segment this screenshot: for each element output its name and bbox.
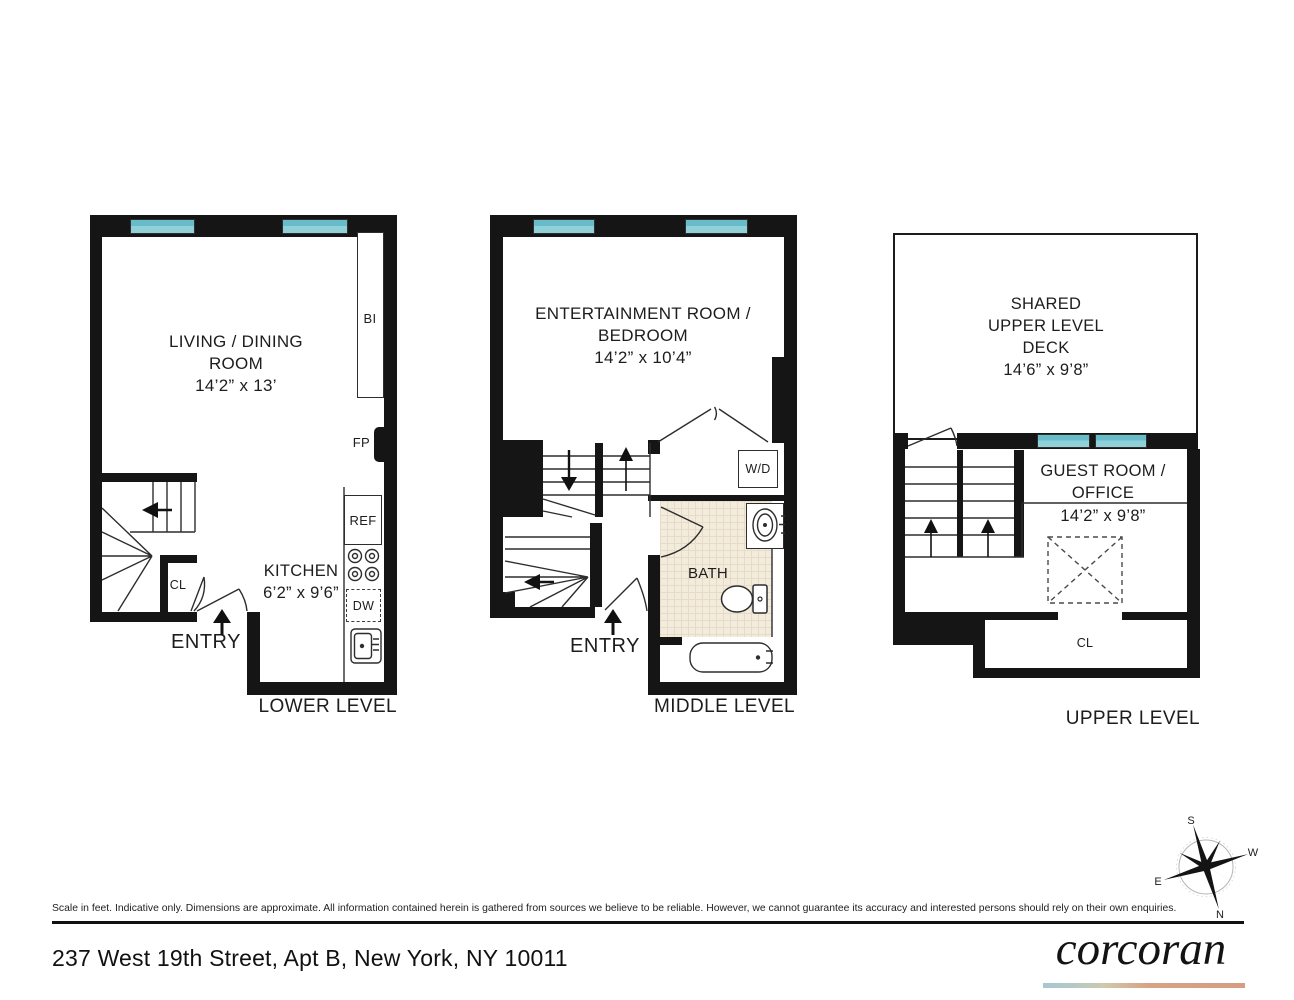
- entertainment-room-dims: 14’2” x 10’4”: [533, 347, 753, 369]
- floorplan-page: BI FP LIVING / DINING ROOM 14’2” x 13’ K…: [0, 0, 1294, 1000]
- stair-arrow-up: [981, 519, 995, 557]
- deck-label: DECK: [936, 337, 1156, 359]
- closet-label: CL: [156, 577, 200, 593]
- fireplace-label: FP: [334, 435, 370, 451]
- compass-east: E: [1154, 876, 1161, 888]
- window: [1095, 434, 1147, 448]
- stair-arrow-up: [924, 519, 938, 557]
- closet-label: CL: [1045, 635, 1125, 651]
- level-title: MIDDLE LEVEL: [585, 696, 795, 718]
- wall-segment: [772, 357, 797, 443]
- sink-drain: [360, 644, 364, 648]
- wall-segment: [384, 215, 397, 695]
- living-room-dims: 14’2” x 13’: [126, 375, 346, 397]
- wall-segment: [648, 682, 797, 695]
- fireplace: [374, 427, 384, 462]
- wall-segment: [957, 450, 963, 557]
- middle-level-plan: ENTERTAINMENT ROOM / BEDROOM 14’2” x 10’…: [490, 215, 797, 720]
- stair-arrow-down: [561, 450, 577, 491]
- skylight-dashed: [1048, 537, 1122, 603]
- wall-segment: [490, 440, 543, 517]
- stair-arrow-left: [142, 502, 172, 518]
- stair-arrow-up: [619, 447, 633, 491]
- wall-segment: [590, 523, 602, 607]
- washer-dryer: W/D: [738, 450, 778, 488]
- guest-room-label: OFFICE: [1003, 482, 1203, 504]
- living-room-label: ROOM: [126, 353, 346, 375]
- level-title: LOWER LEVEL: [187, 696, 397, 718]
- entry-label: ENTRY: [555, 635, 655, 657]
- deck-label: SHARED: [936, 293, 1156, 315]
- wall-segment: [247, 612, 260, 695]
- entertainment-room-label: BEDROOM: [533, 325, 753, 347]
- wall-segment: [98, 473, 197, 482]
- entry-label: ENTRY: [156, 631, 256, 653]
- kitchen-label: KITCHEN: [241, 560, 361, 582]
- wall-segment: [90, 215, 102, 622]
- tub-drain: [756, 655, 760, 659]
- wall-segment: [660, 637, 682, 645]
- wall-segment: [893, 612, 973, 645]
- wall-segment: [490, 607, 595, 618]
- corcoran-logo: corcoran: [1035, 922, 1247, 976]
- guest-room-dims: 14’2” x 9’8”: [1003, 505, 1203, 527]
- window: [130, 219, 195, 234]
- window: [533, 219, 595, 234]
- built-in-label: BI: [348, 311, 392, 327]
- deck-label: UPPER LEVEL: [936, 315, 1156, 337]
- window: [1037, 434, 1090, 448]
- wall-segment: [247, 682, 397, 695]
- compass-south: S: [1187, 815, 1194, 827]
- wall-segment: [784, 215, 797, 695]
- dishwasher: DW: [346, 589, 381, 622]
- stair-arrow-left: [524, 574, 554, 590]
- lower-level-plan: BI FP LIVING / DINING ROOM 14’2” x 13’ K…: [90, 215, 397, 720]
- upper-level-plan: SHARED UPPER LEVEL DECK 14’6” x 9’8” GUE…: [893, 233, 1200, 723]
- refrigerator: REF: [344, 495, 382, 545]
- disclaimer-text: Scale in feet. Indicative only. Dimensio…: [52, 903, 1244, 914]
- entry-arrow: [604, 609, 622, 635]
- wall-segment: [1122, 612, 1187, 620]
- wall-segment: [985, 612, 1058, 620]
- guest-room-label: GUEST ROOM /: [1003, 460, 1203, 482]
- property-address: 237 West 19th Street, Apt B, New York, N…: [52, 945, 568, 972]
- entertainment-room-label: ENTERTAINMENT ROOM /: [533, 303, 753, 325]
- level-title: UPPER LEVEL: [988, 708, 1200, 730]
- wall-segment: [648, 555, 660, 695]
- bath-label: BATH: [668, 563, 748, 585]
- deck-dims: 14’6” x 9’8”: [936, 359, 1156, 381]
- corcoran-logo-bar: [1043, 983, 1245, 988]
- wall-segment: [973, 612, 985, 668]
- living-room-label: LIVING / DINING: [126, 331, 346, 353]
- wall-segment: [973, 668, 1200, 678]
- wall-segment: [648, 440, 660, 454]
- wall-segment: [595, 443, 603, 517]
- wall-segment: [90, 612, 197, 622]
- bath-vanity: [746, 503, 784, 549]
- window: [685, 219, 748, 234]
- compass-west: W: [1248, 847, 1259, 859]
- window: [282, 219, 348, 234]
